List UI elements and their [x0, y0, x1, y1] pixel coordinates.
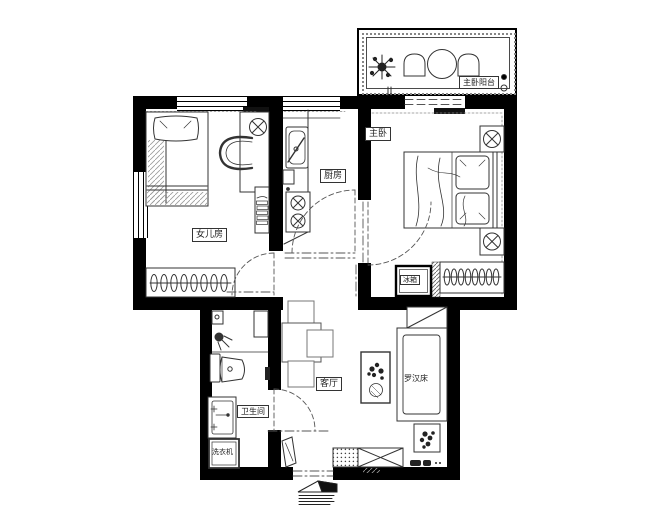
floor-plan: 女儿房 厨房 主卧 主卧阳台 客厅 卫生间 冰箱 罗汉床 洗衣机: [0, 0, 650, 520]
entrance-arrow-icon: [298, 481, 337, 505]
kitchen-sink: [286, 127, 308, 168]
balcony-plant-icon: [369, 55, 395, 79]
remote-items: [410, 460, 441, 466]
daughter-bookshelf: [255, 187, 269, 233]
plant-picture: [361, 352, 390, 403]
bath-vanity: [208, 397, 236, 438]
toilet-icon: [210, 354, 245, 382]
room-label-master: 主卧: [365, 127, 391, 141]
furniture-label-washer: 洗衣机: [212, 449, 233, 456]
entrance-door: [282, 437, 296, 467]
balcony-slider-door: [405, 100, 465, 105]
room-label-bathroom: 卫生间: [237, 405, 269, 418]
daughter-bed: [146, 112, 208, 206]
furniture-label-fridge: 冰箱: [400, 275, 420, 285]
daughter-wardrobe: [146, 268, 235, 297]
bath-corner-shelf: [212, 311, 223, 324]
towel-holder: [265, 367, 270, 380]
room-label-kitchen: 厨房: [320, 169, 346, 183]
master-wardrobe: [432, 262, 504, 297]
entrance-thresholds: [268, 431, 333, 476]
master-nightstand-bottom: [480, 228, 504, 255]
bath-cabinet: [254, 311, 268, 337]
tv-cabinet: [333, 448, 403, 473]
balcony-chair-right: [458, 54, 479, 76]
room-label-living: 客厅: [316, 377, 342, 391]
furniture-label-daybed: 罗汉床: [404, 375, 428, 383]
master-nightstand-top: [480, 126, 504, 152]
floor-plant: [414, 424, 440, 452]
plan-drawing: [0, 0, 650, 520]
balcony-table: [428, 50, 457, 79]
room-label-balcony: 主卧阳台: [459, 76, 499, 89]
room-label-daughter: 女儿房: [192, 228, 227, 242]
balcony-chair-left: [404, 54, 425, 76]
master-bed: [404, 152, 497, 228]
kitchen-heater: [283, 170, 294, 190]
side-table: [407, 307, 447, 328]
bath-door: [274, 389, 315, 430]
dining-set: [282, 301, 333, 387]
hallway-centerlines: [285, 253, 356, 296]
shower-icon: [215, 333, 232, 350]
